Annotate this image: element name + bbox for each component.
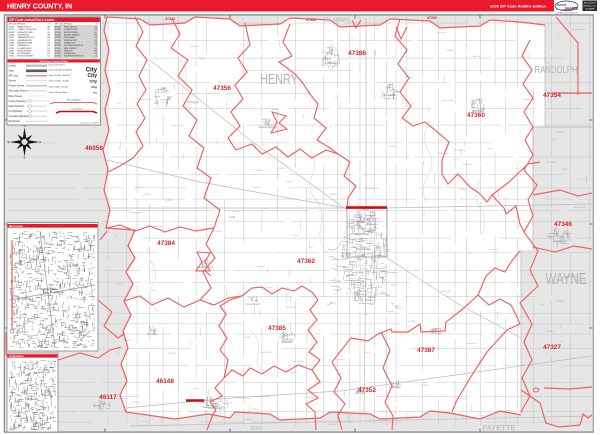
svg-text:47388: 47388: [55, 45, 61, 47]
svg-text:CR 300 E: CR 300 E: [198, 58, 207, 60]
svg-text:CR 300 E: CR 300 E: [252, 187, 261, 189]
svg-text:Cities 0.00 and None: Cities 0.00 and None: [49, 91, 69, 94]
svg-text:County Areas: County Areas: [71, 108, 83, 111]
svg-text:47362: 47362: [55, 50, 61, 52]
svg-text:47384: 47384: [55, 35, 61, 37]
svg-text:47386: 47386: [348, 50, 366, 57]
svg-text:SPICELAND: SPICELAND: [64, 36, 76, 39]
svg-text:STRAUGHN: STRAUGHN: [64, 52, 76, 55]
svg-text:Cities 25,000 - 100,000: Cities 25,000 - 100,000: [49, 74, 71, 77]
svg-text:CR 100 S: CR 100 S: [395, 308, 404, 310]
svg-text:Messick Rd: Messick Rd: [158, 299, 167, 301]
svg-text:WebMaps.com: WebMaps.com: [583, 6, 596, 8]
svg-text:Messick Rd: Messick Rd: [441, 291, 450, 293]
svg-text:Primary Streets: Primary Streets: [9, 85, 26, 88]
svg-text:46186: 46186: [9, 35, 15, 37]
svg-text:Cities 100,000 and Above: Cities 100,000 and Above: [49, 69, 74, 72]
svg-text:CR 400 W: CR 400 W: [555, 132, 564, 134]
svg-text:Kennard: Kennard: [147, 332, 157, 336]
svg-text:47387: 47387: [417, 347, 435, 354]
svg-text:CR 500 S: CR 500 S: [557, 301, 566, 303]
svg-text:MOORELAND: MOORELAND: [18, 52, 31, 55]
svg-text:GREENSBORO: GREENSBORO: [18, 40, 33, 42]
svg-text:Cadiz: Cadiz: [229, 215, 236, 219]
svg-text:47360: 47360: [467, 112, 485, 119]
svg-text:New Castle: New Castle: [44, 287, 58, 291]
svg-text:CR 150 E: CR 150 E: [547, 162, 556, 164]
svg-text:47396: 47396: [427, 16, 437, 20]
svg-text:Interstate Highways: Interstate Highways: [9, 115, 30, 118]
svg-text:47327: 47327: [543, 344, 561, 351]
svg-text:SPRINGPORT: SPRINGPORT: [64, 40, 78, 42]
svg-text:State: State: [9, 70, 15, 73]
svg-text:CR 200 N: CR 200 N: [329, 194, 338, 196]
svg-text:HENRY: HENRY: [260, 71, 298, 88]
svg-text:47344: 47344: [9, 40, 15, 42]
svg-text:Mooreland: Mooreland: [472, 109, 485, 113]
svg-text:CR 200 N: CR 200 N: [257, 266, 266, 268]
svg-text:CR 100 S: CR 100 S: [420, 385, 429, 387]
svg-text:NEW CASTLE: NEW CASTLE: [64, 26, 78, 29]
svg-text:CR 200 N: CR 200 N: [446, 50, 455, 52]
svg-text:WILKINSON: WILKINSON: [18, 35, 30, 37]
svg-text:S: S: [24, 156, 26, 160]
svg-text:46117: 46117: [99, 394, 117, 401]
svg-text:CR 400 W: CR 400 W: [213, 231, 222, 233]
svg-text:CR 150 E: CR 150 E: [277, 168, 286, 170]
svg-text:47366: 47366: [55, 29, 61, 31]
svg-text:CR 300 E: CR 300 E: [165, 200, 174, 202]
svg-text:Greensboro Pike: Greensboro Pike: [572, 29, 585, 31]
svg-text:CR 500 S: CR 500 S: [290, 372, 299, 374]
svg-text:Lewisville: Lewisville: [389, 385, 401, 389]
svg-text:Middletown: Middletown: [324, 61, 338, 65]
svg-text:New Castle: New Castle: [9, 224, 23, 228]
svg-text:47384: 47384: [55, 56, 61, 58]
svg-text:CR 300 E: CR 300 E: [143, 194, 152, 196]
svg-text:2020 ZIP Code Redline Edition: 2020 ZIP Code Redline Edition: [490, 4, 547, 9]
svg-text:46117: 46117: [9, 29, 15, 31]
svg-text:47356: 47356: [213, 85, 231, 92]
svg-text:Base Rd: Base Rd: [272, 109, 279, 111]
svg-text:Streets: Streets: [9, 80, 17, 83]
svg-text:47361: 47361: [9, 56, 15, 58]
svg-text:47385: 47385: [268, 325, 286, 332]
svg-text:CR 150 E: CR 150 E: [243, 337, 252, 339]
svg-text:RANDOLPH: RANDOLPH: [535, 65, 578, 76]
svg-text:46056: 46056: [85, 145, 103, 152]
svg-text:47354: 47354: [543, 92, 561, 99]
svg-text:47362: 47362: [297, 258, 315, 265]
svg-text:Cities 5,000 - 10,000: Cities 5,000 - 10,000: [49, 85, 69, 88]
svg-text:CR 300 E: CR 300 E: [566, 93, 575, 95]
svg-text:Greensboro Pike: Greensboro Pike: [366, 188, 379, 190]
svg-text:CR 400 W: CR 400 W: [123, 340, 132, 342]
svg-text:DELAWARE: DELAWARE: [323, 18, 350, 24]
svg-text:2020 Henry County, IN Map: 2020 Henry County, IN Map: [40, 60, 69, 63]
svg-text:47302: 47302: [306, 18, 316, 22]
svg-text:Spiceland: Spiceland: [281, 340, 293, 344]
svg-text:Knightstown: Knightstown: [208, 406, 223, 410]
svg-text:FAYETTE: FAYETTE: [483, 423, 516, 432]
svg-text:Hagerstown: Hagerstown: [553, 239, 567, 243]
svg-text:Blountsville: Blountsville: [383, 93, 397, 97]
svg-text:LEWISVILLE: LEWISVILLE: [18, 45, 30, 47]
svg-text:47346: 47346: [554, 221, 572, 228]
svg-text:Springport: Springport: [187, 100, 199, 104]
svg-text:CR 300 E: CR 300 E: [546, 331, 555, 333]
svg-text:800.524.2679: 800.524.2679: [584, 3, 596, 5]
svg-text:HENRY COUNTY, IN: HENRY COUNTY, IN: [7, 2, 72, 10]
svg-text:47334: 47334: [165, 17, 175, 21]
svg-text:Cities 10,000 - 25,000: Cities 10,000 - 25,000: [49, 80, 70, 83]
svg-text:ZIP Code Areas: ZIP Code Areas: [67, 99, 81, 102]
svg-text:Grant City Rd: Grant City Rd: [566, 275, 577, 278]
svg-text:Copyright MarketMAPS: Copyright MarketMAPS: [80, 122, 100, 125]
svg-text:STRAUGHN: STRAUGHN: [64, 42, 76, 45]
svg-text:CAMBRIDGE CITY: CAMBRIDGE CITY: [18, 36, 36, 39]
svg-text:Messick Rd: Messick Rd: [286, 307, 295, 309]
svg-text:Knightstown: Knightstown: [9, 355, 24, 358]
svg-text:Mount Summit: Mount Summit: [197, 265, 214, 269]
svg-text:Messick Rd: Messick Rd: [439, 153, 448, 155]
svg-text:Straughn: Straughn: [432, 331, 443, 335]
svg-text:HAGERSTOWN: HAGERSTOWN: [18, 42, 33, 45]
svg-text:47384: 47384: [157, 240, 175, 247]
svg-text:SULPHUR SPRINGS: SULPHUR SPRINGS: [64, 45, 84, 47]
svg-text:Minor Streets: Minor Streets: [9, 95, 24, 98]
svg-text:Grant City Rd: Grant City Rd: [442, 99, 453, 102]
svg-text:City: City: [89, 79, 97, 84]
svg-text:CR 300 E: CR 300 E: [255, 170, 264, 172]
svg-text:Cities and Towns: Cities and Towns: [49, 64, 66, 67]
svg-text:Base Rd: Base Rd: [233, 211, 240, 213]
svg-text:County Highways: County Highways: [9, 100, 28, 103]
svg-text:CR 500 S: CR 500 S: [561, 169, 570, 171]
svg-text:CR 200 N: CR 200 N: [371, 255, 380, 257]
svg-text:E: E: [39, 140, 41, 144]
svg-text:LOSANTVILLE: LOSANTVILLE: [18, 47, 32, 50]
svg-text:Grant City Rd: Grant City Rd: [292, 360, 303, 363]
svg-text:Base Rd: Base Rd: [191, 46, 198, 48]
svg-text:MOUNT SUMMIT: MOUNT SUMMIT: [18, 56, 35, 58]
svg-text:Messick Rd: Messick Rd: [467, 343, 476, 345]
svg-text:Greensboro: Greensboro: [246, 302, 260, 306]
svg-text:Secondary Streets: Secondary Streets: [9, 90, 29, 93]
svg-text:Greensboro Pike: Greensboro Pike: [129, 212, 142, 214]
svg-text:Rail Roads: Rail Roads: [9, 121, 21, 123]
svg-text:CR 300 E: CR 300 E: [459, 189, 468, 191]
svg-text:Greensboro Pike: Greensboro Pike: [137, 99, 150, 101]
svg-text:County: County: [9, 65, 17, 68]
svg-text:Grant City Rd: Grant City Rd: [171, 124, 182, 127]
svg-text:Grant City Rd: Grant City Rd: [261, 351, 272, 354]
svg-text:Knightstown: Knightstown: [25, 398, 39, 401]
svg-text:Dunreith: Dunreith: [355, 391, 365, 395]
svg-text:CR 300 E: CR 300 E: [527, 275, 536, 277]
svg-text:ZIP Code Index/Grid Locator: ZIP Code Index/Grid Locator: [8, 18, 55, 22]
svg-text:DataMAPS: DataMAPS: [585, 8, 595, 11]
svg-text:CR 200 N: CR 200 N: [405, 77, 414, 79]
svg-text:Grant City Rd: Grant City Rd: [574, 206, 585, 209]
svg-text:Base Rd: Base Rd: [473, 56, 480, 58]
svg-text:City: City: [91, 85, 97, 89]
svg-text:Messick Rd: Messick Rd: [463, 164, 472, 166]
svg-text:Grant City Rd: Grant City Rd: [575, 279, 586, 282]
svg-text:Grant City Rd: Grant City Rd: [454, 149, 465, 152]
svg-text:CR 150 E: CR 150 E: [408, 321, 417, 323]
svg-text:State Highways: State Highways: [9, 105, 26, 108]
svg-text:ZIP Code: ZIP Code: [9, 76, 19, 78]
svg-text:CR 100 S: CR 100 S: [132, 402, 141, 404]
svg-text:LOSANTVILLE: LOSANTVILLE: [64, 28, 78, 31]
svg-text:ZIP Code ZIP Name: ZIP Code ZIP Name: [9, 24, 26, 26]
svg-text:RUSH: RUSH: [251, 426, 263, 432]
svg-text:Grant City Rd: Grant City Rd: [523, 98, 534, 101]
svg-text:CR 300 E: CR 300 E: [328, 424, 337, 426]
svg-text:47356: 47356: [9, 50, 15, 52]
svg-text:46148: 46148: [156, 378, 174, 385]
svg-text:MOUNT SUMMIT: MOUNT SUMMIT: [64, 35, 81, 37]
svg-text:Sulphur Springs: Sulphur Springs: [259, 125, 278, 129]
svg-text:MIDDLETOWN: MIDDLETOWN: [18, 50, 32, 52]
svg-text:SHIRLEY: SHIRLEY: [64, 50, 73, 52]
svg-text:CR 150 E: CR 150 E: [251, 409, 260, 411]
svg-text:SULPHUR SPRINGS: SULPHUR SPRINGS: [64, 56, 84, 58]
svg-text:MARKLEVILLE: MARKLEVILLE: [18, 26, 32, 29]
svg-text:CR 150 E: CR 150 E: [168, 353, 177, 355]
svg-text:CHARLOTTESVILLE: CHARLOTTESVILLE: [18, 28, 38, 31]
svg-text:47386: 47386: [55, 40, 61, 42]
svg-text:New Castle: New Castle: [356, 247, 370, 251]
svg-text:47352: 47352: [9, 45, 15, 47]
svg-text:US Highways: US Highways: [9, 111, 24, 113]
